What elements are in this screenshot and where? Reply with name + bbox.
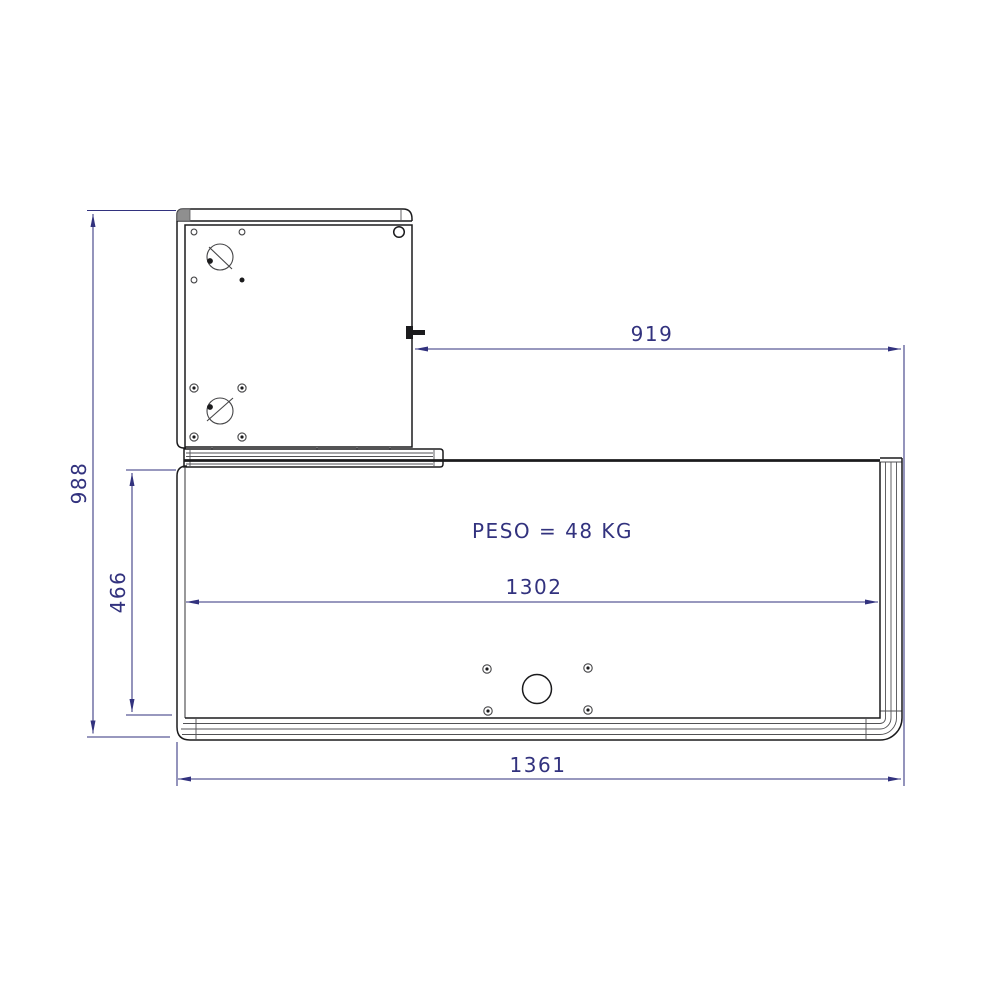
bracket-box (177, 209, 425, 450)
bracket-face (185, 225, 412, 447)
drawing-sheet: PESO = 48 KG 988 466 919 1302 1361 (0, 0, 1000, 1000)
mounting-hole (191, 277, 197, 283)
dim-overall-height: 988 (67, 211, 176, 738)
dim-overall-width: 1361 (177, 742, 901, 786)
drain-hole-group (483, 664, 592, 715)
right-end-profile (181, 458, 902, 740)
dim-top-offset-width: 919 (415, 322, 904, 786)
center-hole (523, 675, 552, 704)
mounting-hole (239, 229, 245, 235)
technical-drawing: PESO = 48 KG 988 466 919 1302 1361 (0, 0, 1000, 1000)
weight-label: PESO = 48 KG (472, 519, 633, 543)
corner-hole (394, 227, 405, 238)
tank-body: PESO = 48 KG (177, 458, 902, 740)
side-tab (406, 326, 425, 339)
tank-left-edge (177, 466, 190, 740)
dim-inner-width: 1302 (186, 575, 878, 602)
mounting-hole (191, 229, 197, 235)
bracket-top-rail (177, 209, 412, 221)
dim-panel-height: 466 (106, 470, 176, 715)
dim-top-offset-width-label: 919 (631, 322, 674, 346)
bolt-hole (238, 384, 246, 392)
bolt-hole (238, 433, 246, 441)
dim-inner-width-label: 1302 (506, 575, 563, 599)
dim-panel-height-label: 466 (106, 571, 130, 614)
lock-knob-top (207, 244, 233, 270)
dim-overall-width-label: 1361 (510, 753, 567, 777)
corner-bracket-wedge (177, 209, 190, 221)
bolt-hole (190, 384, 198, 392)
mounting-rail (184, 449, 443, 467)
lock-knob-bottom (207, 398, 233, 424)
mounting-pin (240, 278, 245, 283)
bolt-hole (190, 433, 198, 441)
dim-overall-height-label: 988 (67, 462, 91, 505)
